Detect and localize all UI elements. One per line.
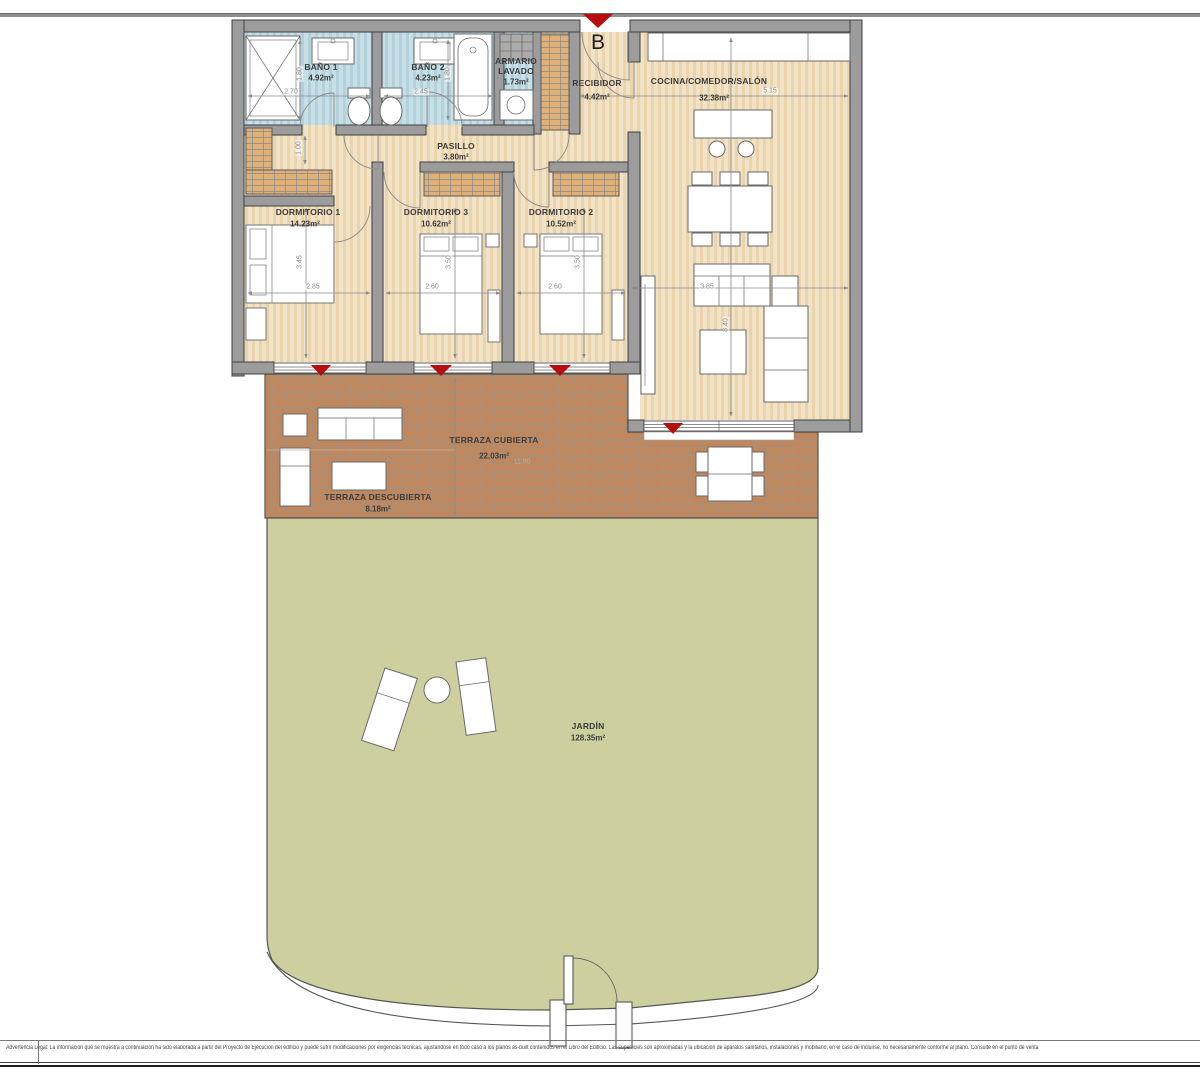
area-label-cocina: 32.38m² xyxy=(699,94,729,103)
pillow xyxy=(544,237,569,251)
stool xyxy=(738,141,754,157)
dim-banyo2-width: 2.45 xyxy=(413,89,429,96)
dim-dorm1-depth: 3.45 xyxy=(297,254,304,270)
gate-post xyxy=(616,1002,632,1048)
kitchen-island xyxy=(694,110,772,138)
area-label-dormitorio3: 10.62m² xyxy=(421,220,451,229)
armchair xyxy=(772,276,798,306)
dim-salon-depth: 8.40 xyxy=(723,317,730,333)
dining-chair xyxy=(748,172,768,185)
room-label-terraza-cubierta: TERRAZA CUBIERTA xyxy=(449,435,538,445)
dim-terraza-width: 11.90 xyxy=(513,459,532,466)
garden-round-table xyxy=(424,677,450,703)
room-label-armario-lavado: ARMARIO LAVADO xyxy=(488,56,544,76)
area-label-dormitorio1: 14.23m² xyxy=(290,220,320,229)
dorm2-window xyxy=(534,363,610,373)
dim-dorm3-width: 2.60 xyxy=(424,284,440,291)
dorm1-dresser xyxy=(246,308,266,340)
room-label-pasillo: PASILLO xyxy=(437,141,475,151)
pillow xyxy=(250,229,266,259)
dining-chair xyxy=(748,233,768,246)
kitchen-counter xyxy=(648,33,850,61)
gate-door-leaf xyxy=(564,956,573,1004)
dim-banyo1-width: 2.70 xyxy=(283,89,299,96)
dorm2-wardrobe xyxy=(553,172,619,196)
washing-machine xyxy=(500,90,533,120)
area-label-jardin: 128.35m² xyxy=(571,734,605,743)
room-label-banyo2: BAÑO 2 xyxy=(411,62,444,72)
dim-dorm2-depth: 3.50 xyxy=(575,254,582,270)
dorm2-desk xyxy=(612,290,624,340)
dim-cocina-width: 5.15 xyxy=(762,88,778,95)
entrance-marker: B xyxy=(591,31,605,55)
dim-dorm3-depth: 3.50 xyxy=(446,254,453,270)
tv-unit xyxy=(641,276,655,394)
dining-chair xyxy=(720,233,740,246)
room-label-recibidor: RECIBIDOR xyxy=(572,78,622,88)
area-label-dormitorio2: 10.52m² xyxy=(546,220,576,229)
chaise-sofa xyxy=(764,306,808,402)
area-label-banyo2: 4.23m² xyxy=(415,74,440,83)
room-label-dormitorio3: DORMITORIO 3 xyxy=(404,207,469,217)
dorm1-closet-horizontal xyxy=(246,170,332,194)
terrace-lounge-chair xyxy=(280,448,310,506)
hall-closet xyxy=(541,34,569,130)
dining-chair xyxy=(720,172,740,185)
dim-entry: 1.00 xyxy=(296,140,303,156)
dining-chair xyxy=(692,172,712,185)
dining-table xyxy=(688,186,772,232)
room-label-jardin: JARDÍN xyxy=(572,721,605,731)
dim-dorm2-width: 2.60 xyxy=(547,284,563,291)
legal-top-rule xyxy=(0,1040,1200,1041)
area-label-recibidor: 4.42m² xyxy=(584,93,609,102)
floor-plan-drawing xyxy=(0,0,1200,1072)
dorm3-wardrobe xyxy=(424,172,500,196)
stool xyxy=(709,141,725,157)
room-label-cocina: COCINA/COMEDOR/SALÓN xyxy=(651,76,767,86)
pillow xyxy=(424,237,449,251)
area-label-terraza-cubierta: 22.03m² xyxy=(479,452,509,461)
dim-banyo1-depth: 1.80 xyxy=(297,66,304,82)
area-label-pasillo: 3.80m² xyxy=(443,153,468,162)
legal-disclaimer: Advertencia Legal: La información que se… xyxy=(6,1045,1196,1051)
garden-area xyxy=(267,518,818,1010)
bath1-toilet xyxy=(348,97,370,125)
dorm1-closet-vertical xyxy=(246,128,272,170)
area-label-terraza-descubierta: 8.18m² xyxy=(365,505,390,514)
terrace-side-table xyxy=(283,414,307,436)
entrance-arrow-icon xyxy=(583,14,613,28)
dim-banyo2-depth: 1.80 xyxy=(445,66,452,82)
legal-left-tick xyxy=(38,1040,39,1064)
dining-chair xyxy=(692,233,712,246)
nightstand xyxy=(486,234,499,247)
patio-chair xyxy=(752,452,764,472)
bottom-rule-thick xyxy=(0,1065,1200,1067)
area-label-banyo1: 4.92m² xyxy=(308,74,333,83)
dim-salon-width: 3.85 xyxy=(699,284,715,291)
terrace-coffee-table xyxy=(332,462,386,490)
dim-dorm1-width: 2.85 xyxy=(305,284,321,291)
bottom-rule-thin xyxy=(0,1062,1200,1063)
dorm3-desk xyxy=(488,290,500,342)
pillow xyxy=(453,237,478,251)
area-label-armario-lavado: 1.73m² xyxy=(503,78,528,87)
pillow xyxy=(250,265,266,295)
room-label-dormitorio2: DORMITORIO 2 xyxy=(529,207,594,217)
room-label-banyo1: BAÑO 1 xyxy=(304,62,337,72)
patio-chair xyxy=(696,476,708,496)
patio-chair xyxy=(696,452,708,472)
dorm3-window xyxy=(414,363,492,373)
terrace-sofa xyxy=(318,408,402,440)
room-label-terraza-descubierta: TERRAZA DESCUBIERTA xyxy=(324,492,431,502)
nightstand xyxy=(524,234,537,247)
floorplan-page: B BAÑO 1 4.92m² BAÑO 2 4.23m² ARMARIO LA… xyxy=(0,0,1200,1072)
room-label-dormitorio1: DORMITORIO 1 xyxy=(276,207,341,217)
bath2-toilet xyxy=(380,97,402,125)
coffee-table xyxy=(700,330,746,374)
patio-chair xyxy=(752,476,764,496)
salon-sill xyxy=(644,432,794,440)
pillow xyxy=(573,237,598,251)
